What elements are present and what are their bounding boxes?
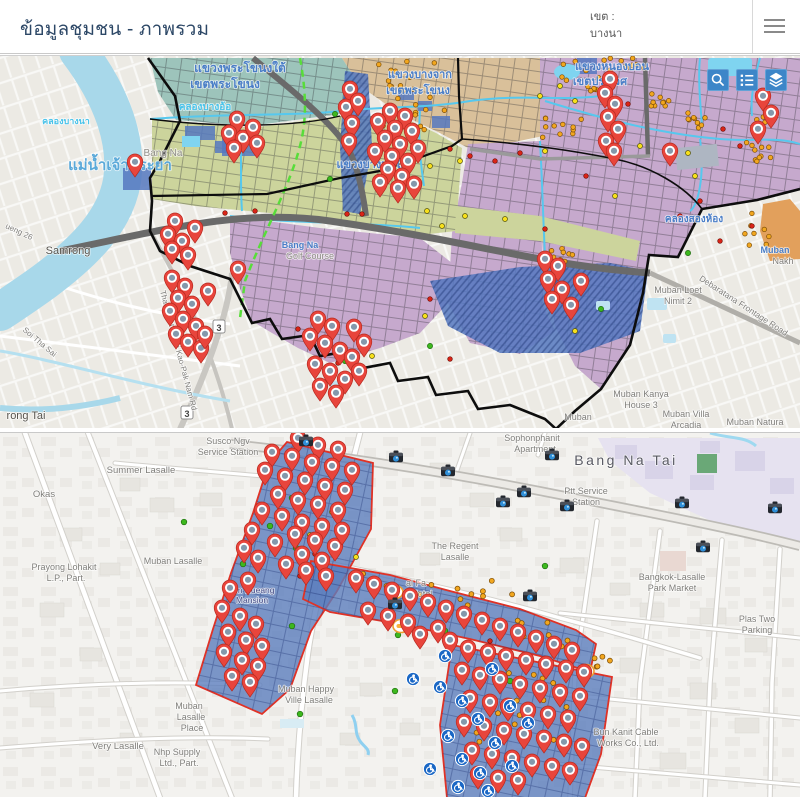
map-label: Nhp Supply — [154, 747, 201, 757]
map-dot — [297, 711, 303, 717]
map-dot — [571, 125, 576, 130]
map-dot — [458, 159, 463, 164]
menu-button[interactable] — [762, 15, 786, 37]
header-divider — [752, 0, 753, 53]
map-dot — [392, 688, 398, 694]
map-dot — [354, 555, 359, 560]
map-dot — [448, 147, 453, 152]
district-value: บางนา — [590, 26, 740, 43]
map-label: Muban Kanya — [613, 389, 669, 399]
wheelchair-marker[interactable] — [455, 694, 468, 707]
map-dot — [267, 523, 273, 529]
map-dot — [638, 144, 643, 149]
wheelchair-marker[interactable] — [488, 736, 501, 749]
map-dot — [561, 122, 566, 127]
map-dot — [543, 149, 548, 154]
map-dot — [658, 95, 663, 100]
map-dot — [543, 116, 548, 121]
map-dot — [767, 145, 772, 150]
map-label: แขวงบางจาก — [388, 69, 452, 81]
layers-icon — [767, 71, 785, 89]
map-label: Plas Two — [739, 614, 775, 624]
map-label: Prayong Lohakit — [31, 562, 97, 572]
map-label: Bang Na — [282, 240, 320, 250]
map-dot — [428, 164, 433, 169]
map-dot — [518, 151, 523, 156]
map-dot — [666, 98, 671, 103]
map-dot — [538, 94, 543, 99]
map-dot — [253, 209, 258, 214]
map-dot — [488, 639, 493, 644]
search-icon — [709, 71, 727, 89]
map-dot — [543, 125, 548, 130]
wheelchair-marker[interactable] — [451, 780, 464, 793]
legend-list-icon — [738, 71, 756, 89]
map-label: Ptt Service — [564, 486, 608, 496]
map-label: Muban — [564, 412, 592, 422]
map-dot — [423, 314, 428, 319]
map-dot — [650, 92, 655, 97]
map-dot — [289, 623, 295, 629]
map-dot — [442, 108, 447, 113]
map-dot — [561, 250, 566, 255]
map-dot — [744, 140, 749, 145]
svg-text:3: 3 — [184, 409, 189, 419]
map-label: Service Station — [198, 447, 259, 457]
map-label: Very Lasalle — [92, 741, 144, 752]
search-button[interactable] — [707, 69, 729, 91]
map-dot — [588, 89, 593, 94]
map-dot — [768, 155, 773, 160]
map-label: Nakh — [772, 256, 793, 266]
map-dot — [512, 722, 517, 727]
map-dot — [747, 243, 752, 248]
map-label: Station — [572, 497, 600, 507]
map-dot — [413, 113, 418, 118]
menu-icon — [764, 19, 785, 21]
map-dot — [540, 135, 545, 140]
svg-text:3: 3 — [216, 323, 221, 333]
wheelchair-marker[interactable] — [481, 784, 494, 797]
map-dot — [592, 656, 597, 661]
map-label: L.P., Part. — [47, 573, 86, 583]
map-dot — [549, 248, 554, 253]
map-dot — [651, 100, 656, 105]
map-toolbar — [707, 69, 787, 91]
map-dot — [595, 664, 600, 669]
map-label: Works Co., Ltd. — [597, 738, 659, 748]
map-dot — [377, 62, 382, 67]
map-dot — [429, 582, 434, 587]
wheelchair-marker[interactable] — [485, 662, 498, 675]
map-dot — [489, 578, 494, 583]
map-label: Arcadia — [671, 420, 702, 428]
map-label: Samrong — [46, 245, 91, 257]
map-dot — [698, 199, 703, 204]
map-dot — [691, 115, 696, 120]
map-dot — [296, 327, 301, 332]
wheelchair-marker[interactable] — [406, 672, 419, 685]
map-label: Muban — [761, 245, 790, 255]
app-header: ข้อมูลชุมชน - ภาพรวม เขต : บางนา — [0, 0, 800, 54]
map-dot — [370, 354, 375, 359]
map-dot — [743, 231, 748, 236]
map-dot — [558, 132, 563, 137]
map-label: คลองสองห้อง — [665, 213, 723, 225]
map-dot — [223, 211, 228, 216]
map-dot — [468, 154, 473, 159]
page-title: ข้อมูลชุมชน - ภาพรวม — [20, 14, 209, 44]
map-dot — [427, 343, 432, 348]
map-label: Ltd., Part. — [159, 758, 198, 768]
map-label: al Fa — [406, 578, 426, 588]
map-label: คลองบางนา — [42, 116, 90, 126]
map-dot — [455, 586, 460, 591]
map-dot — [422, 127, 427, 132]
wheelchair-marker[interactable] — [503, 699, 516, 712]
map-dot — [686, 151, 691, 156]
overview-map[interactable]: 33 แขวงพระโขนงใต้เขตพระโขนงแขวงบางจากเขต… — [0, 55, 800, 428]
map-label: Golf Course — [286, 251, 334, 261]
wheelchair-marker[interactable] — [473, 766, 486, 779]
map-label: Bangkok-Lasalle — [639, 572, 706, 582]
map-dot — [738, 144, 743, 149]
map-dot — [699, 123, 704, 128]
map-label: Nimit 2 — [664, 296, 692, 306]
map-label: Lasalle — [177, 712, 206, 722]
map-label: The Regent — [431, 541, 479, 551]
map-dot — [630, 56, 635, 61]
wheelchair-marker[interactable] — [441, 729, 454, 742]
map-dot — [752, 231, 757, 236]
map-dot — [503, 217, 508, 222]
map-dot — [332, 111, 337, 116]
map-label: Park Market — [648, 583, 697, 593]
map-dot — [579, 117, 584, 122]
map-label: Muban Happy — [278, 684, 335, 694]
map-dot — [561, 62, 566, 67]
map-label: rong Tai — [7, 410, 46, 422]
map-dot — [755, 159, 760, 164]
wheelchair-marker[interactable] — [438, 649, 451, 662]
map-dot — [425, 209, 430, 214]
map-dot — [405, 59, 410, 64]
district-label: เขต : — [590, 9, 740, 26]
map-dot — [570, 253, 575, 258]
detail-map[interactable]: Summer LasalleOkasSusco NgvService Stati… — [0, 432, 800, 797]
map-dot — [564, 705, 569, 710]
map-label: เขตพระโขนง — [190, 76, 260, 91]
map-dot — [750, 224, 755, 229]
map-dot — [469, 592, 474, 597]
legend-button[interactable] — [736, 69, 758, 91]
map-dot — [558, 84, 563, 89]
map-label: คลองบางอ้อ — [179, 101, 232, 113]
map-dot — [481, 594, 486, 599]
map-label: Mansion — [236, 595, 268, 605]
wheelchair-marker[interactable] — [521, 716, 534, 729]
map-label: แขวงพระโขนงใต้ — [194, 60, 286, 75]
map-dot — [686, 117, 691, 122]
map-dot — [598, 306, 603, 311]
map-label: Sophonphanit — [504, 433, 560, 443]
map-dot — [428, 297, 433, 302]
map-dot — [543, 227, 548, 232]
map-dot — [531, 672, 536, 677]
map-dot — [750, 211, 755, 216]
large-building — [675, 144, 719, 170]
wheelchair-marker[interactable] — [455, 752, 468, 765]
map-dot — [552, 124, 557, 129]
map-dot — [181, 519, 187, 525]
map-dot — [345, 212, 350, 217]
map-dot — [463, 214, 468, 219]
map-label: Muban — [175, 701, 203, 711]
app-window: ข้อมูลชุมชน - ภาพรวม เขต : บางนา — [0, 0, 800, 800]
map-dot — [542, 563, 548, 569]
map-label: เขตพระโขนง — [386, 83, 450, 97]
map-label: Bun Kanit Cable — [593, 727, 658, 737]
map-label: Muban Natura — [726, 417, 783, 427]
map-dot — [573, 99, 578, 104]
map-dot — [685, 250, 690, 255]
map-label: Ville Lasalle — [285, 695, 333, 705]
map-dot — [607, 658, 612, 663]
map-dot — [327, 176, 332, 181]
map-dot — [545, 620, 550, 625]
map-dot — [551, 681, 556, 686]
map-dot — [703, 116, 708, 121]
map-dot — [613, 194, 618, 199]
wheelchair-marker[interactable] — [471, 712, 484, 725]
map-dot — [661, 100, 666, 105]
map-label: Bang Na Tai — [574, 452, 678, 468]
map-dot — [564, 78, 569, 83]
layers-button[interactable] — [765, 69, 787, 91]
map-dot — [496, 711, 501, 716]
map-label: Summer Lasalle — [107, 465, 176, 476]
map-dot — [584, 174, 589, 179]
map-dot — [721, 127, 726, 132]
map-dot — [762, 227, 767, 232]
wheelchair-marker[interactable] — [505, 759, 518, 772]
map-label: Muban Lasalle — [144, 556, 203, 566]
map-dot — [493, 159, 498, 164]
map-dot — [626, 102, 631, 107]
map-label: Place — [181, 723, 204, 733]
map-dot — [458, 597, 463, 602]
map-label: Muban Villa — [663, 409, 710, 419]
map-label: Bang Na — [144, 148, 183, 159]
map-dot — [718, 239, 723, 244]
district-selector[interactable]: เขต : บางนา — [590, 9, 740, 43]
map-dot — [686, 111, 691, 116]
map-label: Okas — [33, 489, 55, 500]
map-dot — [448, 357, 453, 362]
map-dot — [693, 174, 698, 179]
map-label: Lasalle — [441, 552, 470, 562]
map-label: House 3 — [624, 400, 658, 410]
map-label: Susco Ngv — [206, 436, 250, 446]
map-dot — [573, 329, 578, 334]
map-label: Parking — [742, 625, 773, 635]
map-dot — [600, 654, 605, 659]
map-dot — [360, 212, 365, 217]
map-dot — [510, 592, 515, 597]
wheelchair-marker[interactable] — [423, 762, 436, 775]
map-dot — [750, 143, 755, 148]
map-dot — [560, 75, 565, 80]
map-dot — [432, 61, 437, 66]
map-dot — [424, 107, 429, 112]
map-dot — [480, 589, 485, 594]
map-dot — [759, 145, 764, 150]
route-shield: 3 — [213, 320, 225, 333]
map-dot — [753, 148, 758, 153]
wheelchair-marker[interactable] — [433, 680, 446, 693]
map-label: Muban Loet — [654, 285, 702, 295]
map-dot — [477, 739, 482, 744]
map-dot — [608, 56, 613, 61]
map-dot — [440, 224, 445, 229]
map-dot — [767, 234, 772, 239]
map-dot — [413, 103, 418, 108]
